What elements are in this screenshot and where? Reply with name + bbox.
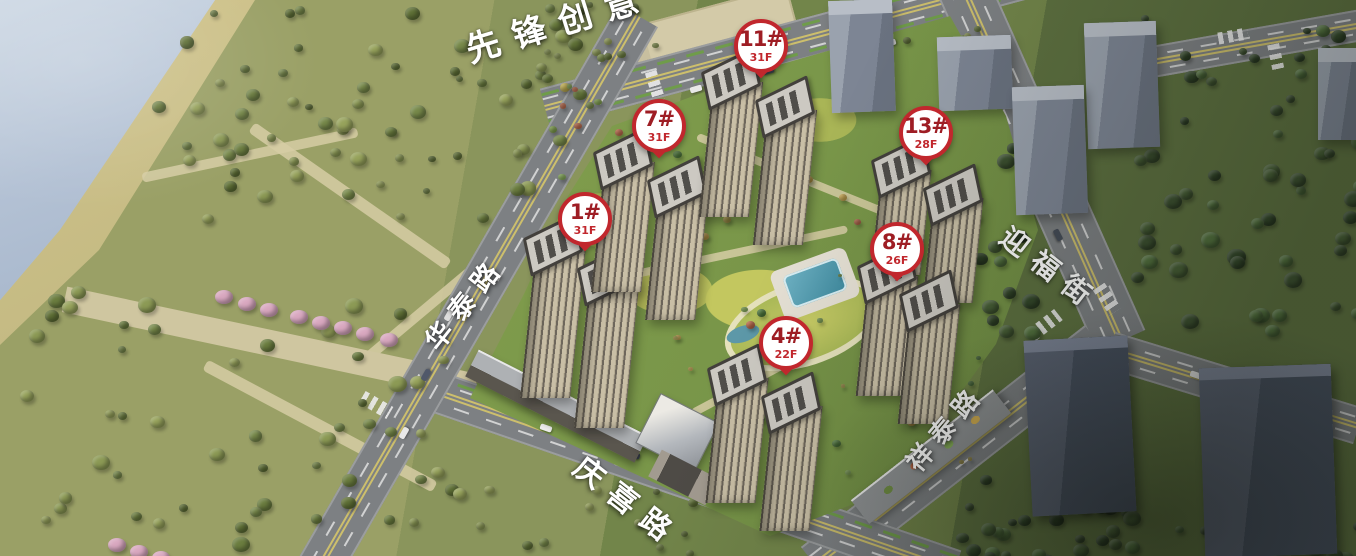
tree: [148, 324, 161, 335]
blossom-tree: [152, 551, 170, 556]
tree: [29, 329, 45, 343]
tree: [336, 117, 353, 131]
blossom-tree: [130, 545, 148, 556]
tree: [1206, 77, 1217, 86]
blossom-tree: [380, 333, 398, 347]
pin-floor-count: 28F: [915, 139, 938, 150]
blossom-tree: [334, 321, 352, 335]
tree: [202, 214, 214, 224]
tree: [385, 427, 397, 437]
tree: [395, 154, 405, 162]
tree: [341, 497, 356, 510]
tree: [1294, 53, 1305, 62]
tree: [560, 103, 566, 108]
tree: [845, 470, 851, 475]
blossom-tree: [312, 316, 330, 330]
tree: [289, 157, 299, 166]
rooftop-units: [718, 356, 757, 395]
blossom-tree: [290, 310, 308, 324]
tree: [1324, 149, 1335, 158]
tree: [229, 358, 240, 367]
tree: [92, 455, 109, 470]
tree: [1284, 272, 1303, 288]
tree: [956, 533, 969, 544]
tree: [131, 512, 142, 521]
tree: [453, 488, 467, 500]
tree: [1096, 535, 1109, 546]
tree: [232, 537, 250, 552]
pin-ball: 4# 22F: [759, 316, 813, 370]
blossom-tree: [356, 327, 374, 341]
tree: [554, 53, 561, 59]
pin-building-number: 13#: [904, 116, 948, 137]
tree: [499, 94, 513, 106]
tree: [1141, 255, 1157, 269]
tree: [1181, 314, 1199, 329]
pin-ball: 8# 26F: [870, 222, 924, 276]
tree: [999, 325, 1014, 337]
tree: [832, 440, 841, 447]
tree: [230, 168, 240, 176]
tree: [456, 76, 463, 82]
building-pin-8[interactable]: 8# 26F: [870, 222, 926, 300]
tree: [285, 9, 295, 18]
aerial-masterplan-canvas: 先锋创意 华泰路 迎福街 祥泰路 庆喜路 1# 31F 4# 22F 7# 31…: [0, 0, 1356, 556]
tree: [287, 97, 299, 107]
tree: [723, 216, 731, 223]
pin-building-number: 4#: [771, 326, 801, 347]
tree: [1272, 309, 1287, 321]
tree: [965, 503, 974, 511]
context-building: [1084, 21, 1160, 149]
tree: [152, 101, 166, 113]
tree: [368, 44, 382, 56]
tree: [391, 63, 400, 70]
tree: [246, 89, 260, 101]
tree: [150, 416, 164, 428]
tree: [1295, 69, 1307, 79]
context-building: [1199, 364, 1338, 556]
context-building: [1318, 48, 1356, 140]
tree: [423, 188, 430, 194]
tree: [396, 213, 405, 221]
pin-building-number: 11#: [739, 29, 783, 50]
tree: [966, 544, 981, 556]
tree: [350, 152, 367, 166]
tree: [1131, 272, 1144, 283]
tree: [1334, 245, 1347, 256]
tree: [45, 310, 59, 322]
tree: [1008, 519, 1017, 527]
tree: [71, 286, 86, 299]
tree: [1170, 244, 1183, 255]
tree: [342, 189, 355, 200]
tree: [741, 307, 748, 313]
pin-floor-count: 22F: [775, 349, 798, 360]
blossom-tree: [238, 297, 256, 311]
tree: [572, 87, 578, 92]
pin-floor-count: 26F: [886, 255, 909, 266]
tree: [294, 44, 303, 51]
pin-building-number: 7#: [644, 109, 674, 130]
tree: [688, 367, 693, 371]
tree: [118, 346, 126, 353]
tree: [1251, 218, 1264, 229]
tree: [484, 486, 494, 495]
tree: [513, 149, 523, 157]
tree: [1140, 222, 1155, 235]
pin-building-number: 1#: [570, 202, 600, 223]
tree: [376, 181, 385, 188]
tree: [250, 507, 263, 518]
tree: [153, 518, 165, 528]
tree: [539, 538, 549, 546]
context-building: [1012, 85, 1088, 215]
tree: [1003, 287, 1016, 298]
tree: [267, 134, 276, 141]
pin-floor-count: 31F: [648, 132, 671, 143]
tree: [1125, 541, 1140, 554]
tree: [477, 79, 487, 88]
pin-ball: 13# 28F: [899, 106, 953, 160]
tree: [318, 117, 333, 130]
tree: [41, 516, 51, 524]
tree: [20, 390, 34, 402]
tree: [1024, 326, 1041, 340]
tree: [182, 142, 192, 150]
tree: [980, 475, 991, 484]
tree: [1208, 170, 1221, 181]
tree: [841, 384, 846, 388]
tree: [553, 135, 567, 147]
tree: [384, 515, 395, 525]
tree: [1201, 232, 1219, 248]
tree: [1286, 95, 1295, 103]
tree: [416, 429, 426, 438]
blossom-tree: [215, 290, 233, 304]
tree: [585, 503, 594, 511]
tree: [118, 412, 127, 420]
tree: [987, 315, 999, 325]
tree: [428, 156, 435, 162]
tree: [59, 492, 72, 503]
tree: [981, 523, 996, 536]
tree: [278, 69, 287, 77]
tree: [976, 356, 981, 361]
tree: [521, 79, 532, 88]
tree: [345, 298, 363, 313]
building-pin-13[interactable]: 13# 28F: [899, 106, 955, 184]
tree: [190, 102, 205, 115]
tree: [1351, 308, 1356, 319]
tree: [405, 7, 420, 20]
tree: [1330, 302, 1341, 311]
tree: [997, 154, 1015, 169]
tree: [1273, 130, 1283, 138]
tree: [574, 123, 581, 129]
pin-floor-count: 31F: [574, 225, 597, 236]
tree: [394, 308, 408, 320]
tree: [1123, 511, 1141, 526]
tree: [477, 213, 489, 223]
tree: [968, 457, 972, 461]
tree: [330, 148, 341, 157]
tree: [1169, 262, 1188, 278]
tree: [213, 133, 229, 147]
tree: [388, 376, 407, 392]
tree: [1196, 70, 1207, 79]
tree: [1316, 25, 1330, 37]
tree: [113, 471, 122, 478]
tree: [1263, 169, 1278, 182]
tree: [1073, 544, 1089, 556]
tree: [319, 432, 335, 446]
tree: [1138, 235, 1156, 250]
tree: [1175, 526, 1184, 533]
tree: [180, 36, 194, 48]
tree: [1230, 256, 1245, 269]
pin-building-number: 8#: [882, 232, 912, 253]
tree: [209, 448, 224, 461]
tree: [984, 552, 996, 556]
tree: [522, 541, 533, 550]
pin-ball: 1# 31F: [558, 192, 612, 246]
tree: [257, 190, 273, 203]
tree: [1018, 515, 1031, 526]
tree: [746, 321, 755, 329]
tree: [903, 37, 911, 44]
tree: [974, 26, 981, 32]
pin-ball: 11# 31F: [734, 19, 788, 73]
tree: [240, 65, 249, 73]
tree: [258, 464, 268, 472]
context-building: [1023, 335, 1136, 516]
tree: [54, 503, 67, 514]
tree: [1106, 525, 1121, 537]
tree: [290, 170, 303, 181]
tree: [1180, 117, 1190, 125]
blossom-tree: [260, 303, 278, 317]
residential-tower: [708, 356, 766, 394]
tree: [235, 108, 249, 120]
tree: [1344, 191, 1356, 207]
tree: [305, 104, 313, 111]
tree: [119, 321, 129, 330]
building-pin-1[interactable]: 1# 31F: [558, 192, 614, 270]
blossom-tree: [108, 538, 126, 552]
tree: [1270, 105, 1283, 116]
tree: [1331, 30, 1347, 43]
tree: [224, 181, 236, 191]
tree: [179, 504, 188, 512]
tree: [334, 423, 345, 432]
tree: [105, 410, 114, 418]
tree: [415, 475, 427, 485]
tree: [839, 194, 847, 201]
tree: [1207, 200, 1219, 210]
tree: [1179, 188, 1193, 200]
tree: [431, 467, 445, 479]
tree: [1290, 173, 1306, 187]
tree: [249, 430, 263, 442]
tree: [1335, 232, 1351, 246]
tree: [215, 79, 225, 88]
tree: [234, 143, 249, 156]
tree: [1265, 325, 1279, 337]
tree: [311, 514, 322, 524]
tree: [62, 301, 78, 314]
building-pin-11[interactable]: 11# 31F: [734, 19, 790, 97]
tree: [357, 82, 370, 93]
building-pin-4[interactable]: 4# 22F: [759, 316, 815, 394]
tree: [1109, 539, 1122, 550]
tree: [1296, 186, 1306, 195]
pin-floor-count: 31F: [750, 52, 773, 63]
tree: [1279, 255, 1293, 267]
tree: [450, 67, 460, 75]
tree: [476, 522, 485, 530]
tree: [817, 318, 822, 323]
tree: [1001, 551, 1011, 556]
tree: [558, 174, 565, 180]
tree: [295, 6, 305, 14]
tree: [1249, 310, 1263, 322]
tree: [385, 127, 397, 137]
pin-ball: 7# 31F: [632, 99, 686, 153]
tree: [1343, 211, 1356, 224]
tree: [1075, 535, 1085, 544]
tree: [594, 99, 601, 105]
tree: [542, 74, 553, 83]
tree: [352, 99, 364, 109]
tree: [312, 462, 321, 469]
tree: [410, 105, 426, 119]
tree: [1249, 54, 1260, 63]
tree: [686, 550, 693, 556]
tree: [1022, 294, 1040, 309]
context-building: [828, 0, 896, 113]
tree: [453, 152, 462, 160]
tree: [363, 419, 375, 429]
tree: [235, 522, 248, 533]
tree: [1134, 155, 1147, 166]
tree: [1032, 549, 1045, 556]
tree: [409, 518, 419, 526]
context-building: [937, 35, 1014, 112]
building-pin-7[interactable]: 7# 31F: [632, 99, 688, 177]
